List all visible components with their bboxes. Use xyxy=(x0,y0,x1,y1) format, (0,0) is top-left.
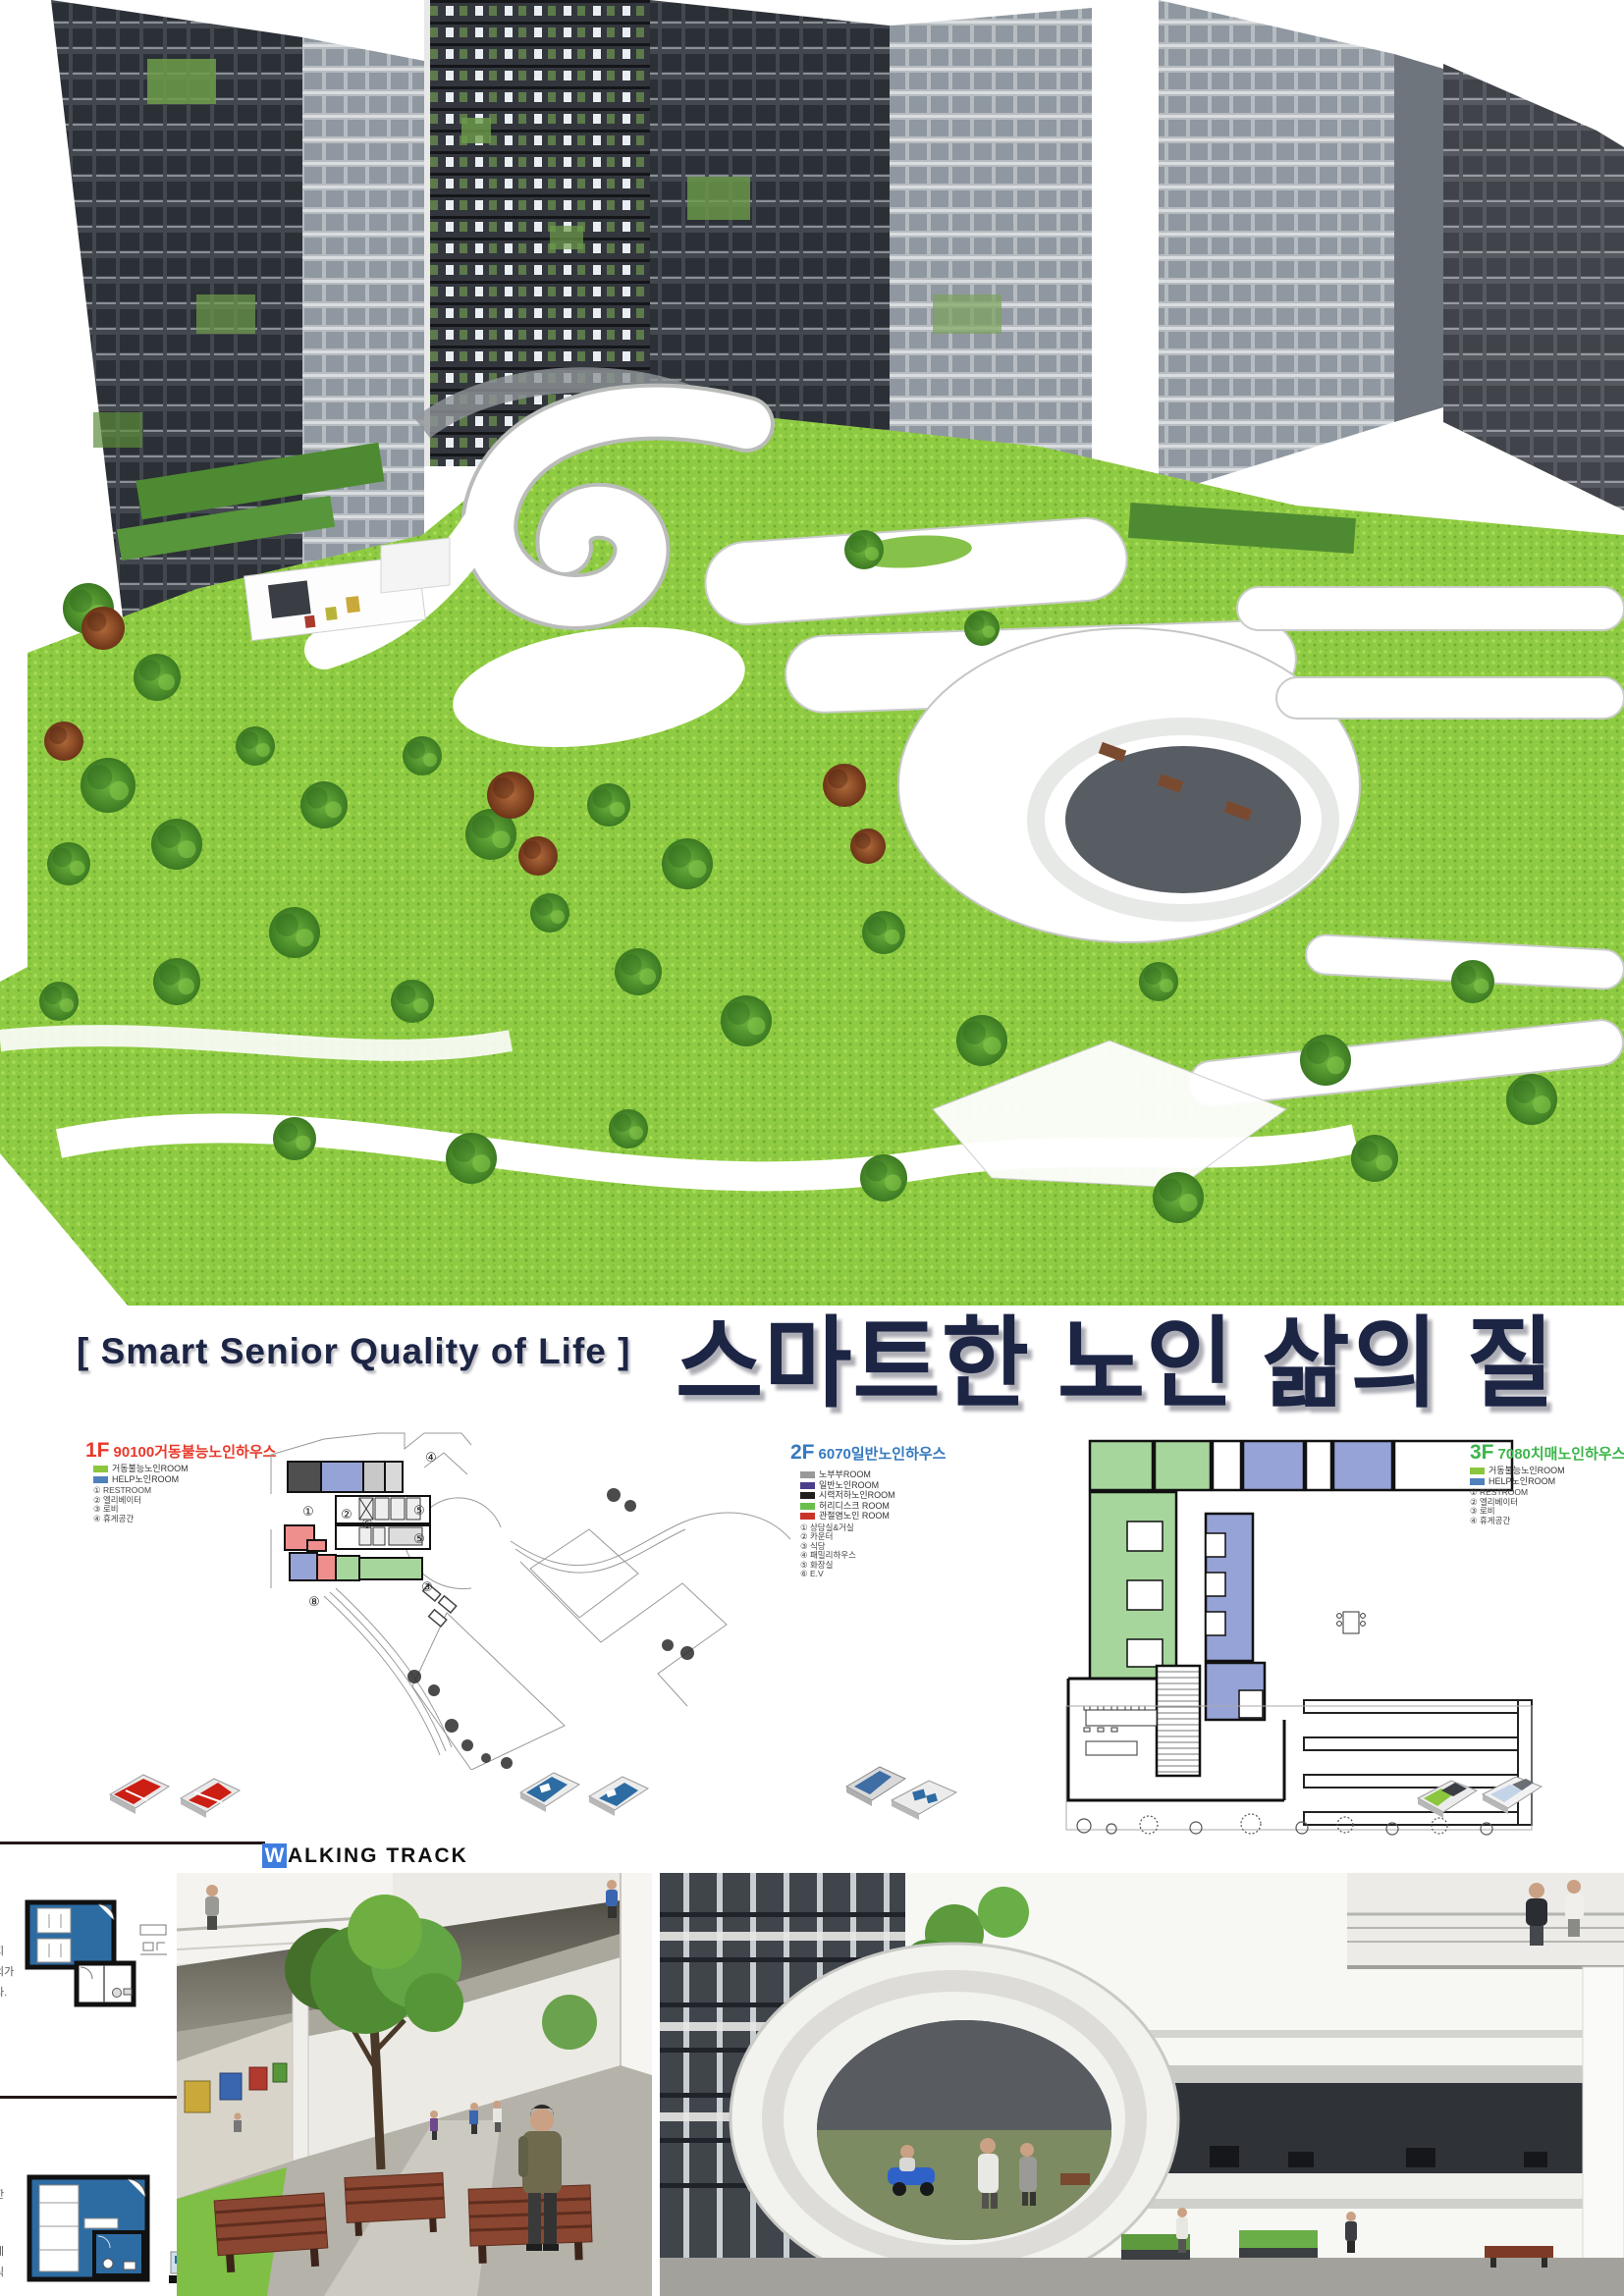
divider-line xyxy=(0,2096,196,2099)
legend-label: 시력저하노인ROOM xyxy=(819,1491,895,1501)
unit-model-blue xyxy=(514,1763,583,1828)
margin-note-upper: 지 의가 다. xyxy=(0,1942,14,2003)
legend-label: 관절염노인 ROOM xyxy=(819,1512,890,1522)
unit-model-blue xyxy=(583,1767,652,1832)
legend-swatch xyxy=(800,1471,815,1478)
legend-key: ⑥ E.V xyxy=(800,1570,938,1579)
unit-model-blue xyxy=(886,1773,960,1832)
legend-swatch xyxy=(800,1513,815,1520)
plan-3f-legend: 거동불능노인ROOM HELP노인ROOM ① RESTROOM ② 엘리베이터… xyxy=(1470,1467,1617,1525)
title-korean: 스마트한 노인 삶의 질 xyxy=(676,1282,1555,1426)
plan-marker: ① xyxy=(302,1505,314,1520)
background-tree xyxy=(542,1995,597,2050)
legend-label: HELP노인ROOM xyxy=(1489,1477,1555,1487)
legend-label: 거동불능노인ROOM xyxy=(1489,1467,1565,1476)
furniture-elevation-sketch xyxy=(137,1919,171,1958)
stair-core xyxy=(1157,1666,1200,1776)
legend-swatch xyxy=(93,1476,108,1483)
unit-model-green xyxy=(1412,1771,1481,1832)
presentation-board: [ Smart Senior Quality of Life ] 스마트한 노인… xyxy=(0,0,1624,2296)
margin-note-lower-b: 세 식 xyxy=(0,2242,4,2283)
plan-marker: ⑤ xyxy=(413,1532,425,1547)
plan-3f-header: 3F7080치매노인하우스 xyxy=(1470,1441,1624,1465)
render-walking-track xyxy=(177,1873,652,2296)
plan-marker: ⑥ xyxy=(361,1518,373,1532)
margin-note-lower-a: 한 xyxy=(0,2185,4,2206)
legend-key: ④ 휴게공간 xyxy=(1470,1517,1617,1526)
plan-marker: ⑧ xyxy=(308,1595,320,1610)
plan-2f-legend: 노부부ROOM 일반노인ROOM 시력저하노인ROOM 허리디스크 ROOM 관… xyxy=(800,1470,938,1579)
legend-label: 일반노인ROOM xyxy=(819,1481,879,1491)
legend-swatch xyxy=(93,1466,108,1472)
legend-swatch xyxy=(800,1482,815,1489)
render-tube-pavilion xyxy=(660,1873,1624,2296)
person-upper-left xyxy=(205,1885,219,1930)
balcony xyxy=(1347,1873,1624,1967)
plan-3f-floor: 3F xyxy=(1470,1441,1494,1464)
legend-swatch xyxy=(800,1492,815,1499)
plan-2f-floor: 2F xyxy=(790,1441,815,1464)
gallery-roof xyxy=(381,538,450,593)
walking-track-initial: W xyxy=(262,1843,287,1868)
divider-line xyxy=(0,1842,265,1844)
legend-swatch xyxy=(800,1503,815,1510)
plan-3f-name: 7080치매노인하우스 xyxy=(1498,1446,1624,1463)
tube xyxy=(731,1944,1178,2293)
walking-track-title: WALKING TRACK xyxy=(262,1843,468,1868)
legend-swatch xyxy=(1470,1478,1485,1485)
legend-label: HELP노인ROOM xyxy=(112,1475,179,1485)
plan-marker: ④ xyxy=(425,1451,437,1466)
unit-model-red xyxy=(104,1765,173,1830)
legend-label: 허리디스크 ROOM xyxy=(819,1502,890,1512)
walking-track-label: ALKING TRACK xyxy=(288,1844,468,1868)
unit-model-white xyxy=(1477,1767,1545,1828)
unit-plan-blue-b xyxy=(10,2171,167,2293)
plan-2f-name: 6070일반노인하우스 xyxy=(819,1446,947,1463)
plan-1f-floor: 1F xyxy=(85,1439,110,1462)
ground xyxy=(660,2258,1624,2296)
plan-marker: ③ xyxy=(421,1580,433,1595)
plan-marker: ⑤ xyxy=(413,1504,425,1519)
legend-label: 노부부ROOM xyxy=(819,1470,871,1480)
title-english: [ Smart Senior Quality of Life ] xyxy=(77,1331,630,1372)
plan-marker: ② xyxy=(341,1508,352,1522)
column xyxy=(293,1993,308,2179)
plan-2f-header: 2F6070일반노인하우스 xyxy=(790,1441,947,1465)
white-column xyxy=(1583,1967,1624,2296)
plan-1f-drawing: ④ ① ② ⑥ ⑤ ⑤ ③ ⑧ xyxy=(177,1431,864,1770)
tube-bench xyxy=(1060,2173,1090,2185)
legend-swatch xyxy=(1470,1468,1485,1474)
hero-aerial-render xyxy=(0,0,1624,1306)
unit-model-red xyxy=(175,1769,244,1834)
